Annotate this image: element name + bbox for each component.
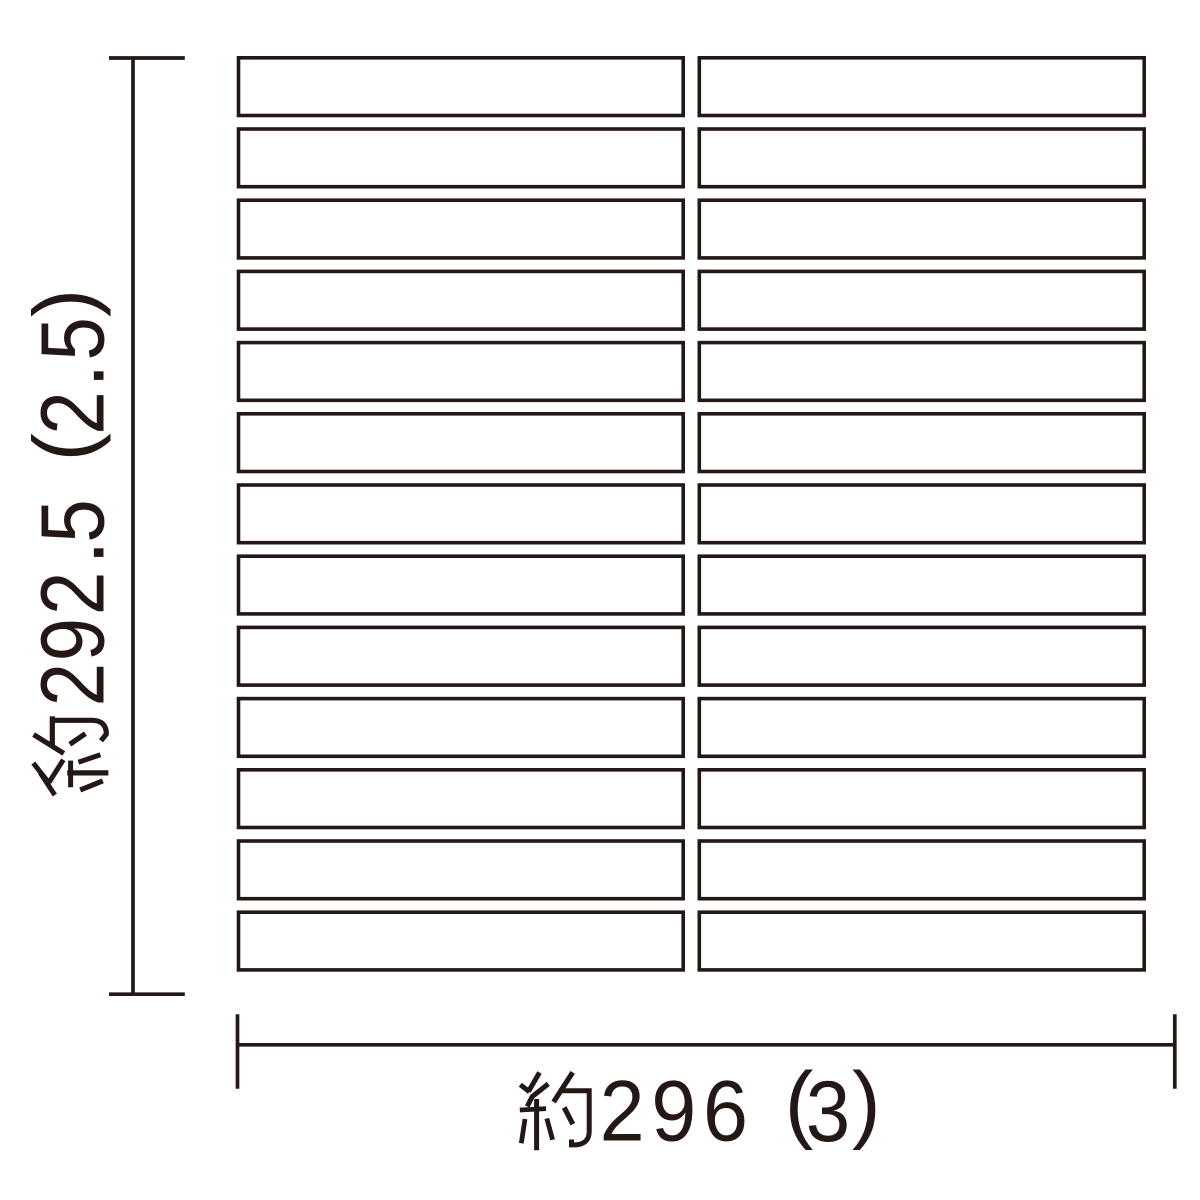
svg-text:9: 9 (23, 618, 123, 662)
svg-text:3: 3 (806, 1064, 851, 1160)
svg-text:.: . (23, 363, 123, 388)
svg-text:.: . (23, 540, 123, 565)
svg-text:5: 5 (23, 499, 123, 543)
svg-text:5: 5 (23, 317, 123, 361)
svg-text:9: 9 (651, 1064, 696, 1160)
svg-text:): ) (17, 289, 112, 317)
svg-text:2: 2 (23, 391, 123, 435)
svg-text:2: 2 (600, 1064, 645, 1160)
svg-text:(: ( (17, 433, 112, 461)
svg-text:2: 2 (23, 572, 123, 616)
svg-text:): ) (852, 1055, 881, 1151)
svg-text:2: 2 (23, 663, 123, 707)
svg-text:6: 6 (703, 1064, 748, 1160)
